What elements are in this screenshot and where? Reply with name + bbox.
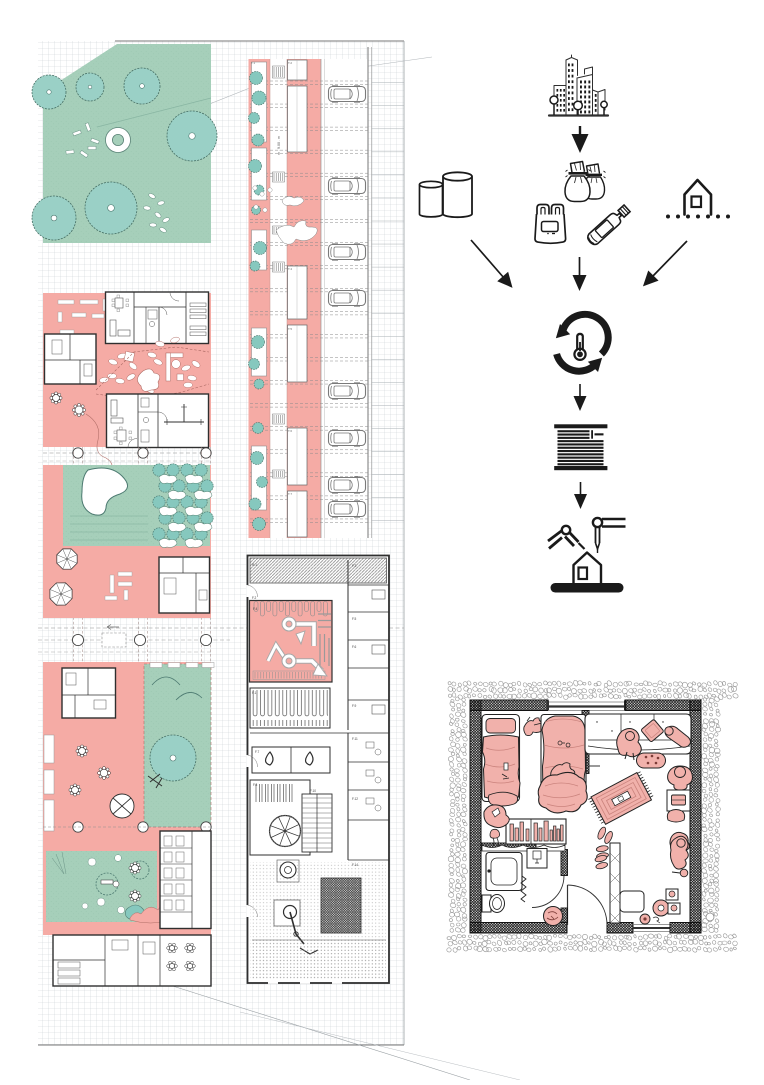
svg-text:F.7: F.7 <box>255 750 259 754</box>
svg-text:m . 9.00 . m: m . 9.00 . m <box>277 136 281 155</box>
svg-text:F.3: F.3 <box>352 564 356 568</box>
svg-text:T.7: T.7 <box>288 492 292 496</box>
svg-text:T.6: T.6 <box>288 429 292 433</box>
svg-text:F.12: F.12 <box>352 797 358 801</box>
svg-text:F.2: F.2 <box>252 596 256 600</box>
svg-text:T.5: T.5 <box>288 327 292 331</box>
svg-text:F.11: F.11 <box>352 737 358 741</box>
svg-text:T.2: T.2 <box>288 61 292 65</box>
svg-text:F.5: F.5 <box>352 617 356 621</box>
svg-text:F.10: F.10 <box>310 789 316 793</box>
svg-text:F.1: F.1 <box>252 691 256 695</box>
svg-text:F.6: F.6 <box>352 645 356 649</box>
svg-text:T.1: T.1 <box>251 61 255 65</box>
svg-text:R.1: R.1 <box>252 563 257 567</box>
svg-text:F.14: F.14 <box>352 863 358 867</box>
svg-text:F.8: F.8 <box>253 783 257 787</box>
svg-text:F.4: F.4 <box>253 607 257 611</box>
svg-text:F.9: F.9 <box>352 704 356 708</box>
svg-text:T.4: T.4 <box>288 267 292 271</box>
